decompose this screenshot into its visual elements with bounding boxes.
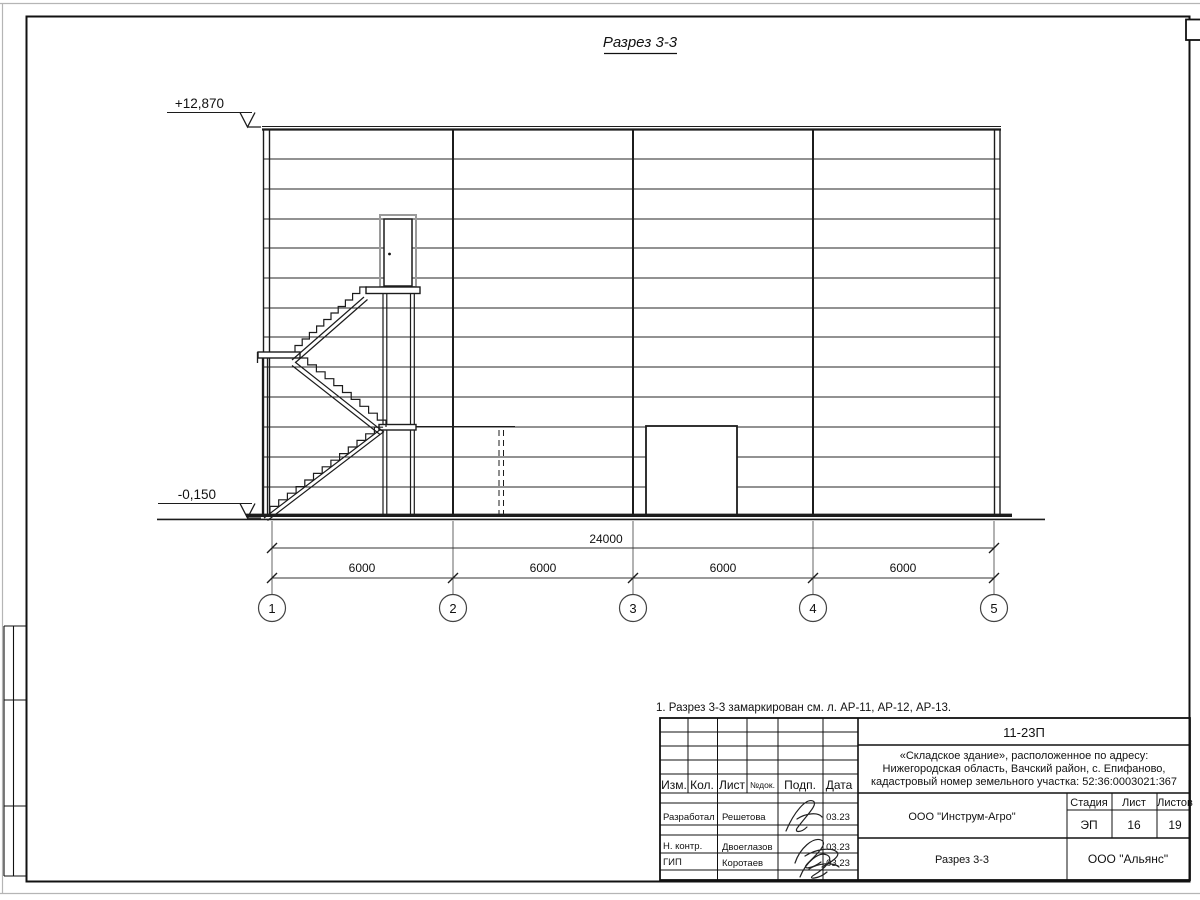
tb-header-list: Лист (719, 778, 746, 792)
tb-date-2: 03.23 (826, 842, 850, 853)
dim-span-1: 6000 (349, 561, 376, 575)
flight-c-stringer (292, 297, 368, 363)
dim-total-label: 24000 (589, 532, 623, 546)
wall-panel-joints (263, 159, 1000, 487)
tb-role-3: ГИП (663, 857, 682, 868)
drawing-sheet: Разрез 3-3 (0, 0, 1200, 900)
dimensions: 24000 6000 6000 6000 6000 1 2 3 4 5 (259, 521, 1008, 622)
drawing-title: Разрез 3-3 (603, 34, 678, 51)
gate-opening (646, 426, 737, 516)
flight-c-steps (295, 287, 367, 352)
hidden-support-column (499, 430, 504, 516)
tb-header-data: Дата (826, 778, 853, 792)
elevation-bottom-label: -0,150 (178, 487, 216, 502)
tb-header-kol: Кол. (690, 778, 714, 792)
tb-address-line-2: Нижегородская область, Вачский район, с.… (883, 763, 1166, 775)
tb-role-2: Н. контр. (663, 841, 702, 852)
door-leaf (384, 219, 412, 286)
mid-landing-right (379, 425, 416, 431)
tb-drawing-name: Разрез 3-3 (935, 854, 989, 866)
stair-left-column (258, 352, 268, 516)
door-knob (388, 253, 391, 256)
flight-b-steps (299, 358, 386, 427)
elevation-top-label: +12,870 (175, 96, 224, 111)
tb-role-1: Разработал (663, 812, 715, 823)
sheet-canvas: Разрез 3-3 (0, 0, 1200, 900)
tb-stage-value: ЭП (1080, 818, 1097, 832)
tb-date-1: 03.23 (826, 812, 850, 823)
tb-sheet-label: Лист (1122, 797, 1146, 809)
tb-header-izm: Изм. (661, 778, 687, 792)
signature-1 (786, 801, 822, 832)
tb-sheets-value: 19 (1168, 818, 1182, 832)
tb-header-ndoc: №док. (750, 780, 775, 790)
door-landing (366, 287, 420, 294)
axis-label-1: 1 (268, 601, 275, 616)
axis-label-4: 4 (809, 601, 816, 616)
stair-columns (383, 294, 414, 517)
axis-label-2: 2 (449, 601, 456, 616)
tb-address-line-3: кадастровый номер земельного участка: 52… (871, 776, 1177, 788)
wall-columns (453, 129, 813, 517)
mid-landing-left (258, 352, 300, 358)
tb-header-podp: Подп. (784, 778, 816, 792)
elevation-marks: +12,870 -0,150 (158, 96, 261, 518)
left-margin-boxes (4, 626, 27, 876)
axis-label-3: 3 (629, 601, 636, 616)
wall-side-edges (264, 129, 1001, 517)
tb-name-2: Двоеглазов (722, 842, 773, 853)
tb-doc-number: 11-23П (1003, 725, 1045, 740)
flight-b-stringer (292, 362, 383, 435)
tb-sheet-value: 16 (1127, 818, 1141, 832)
title-block: Изм. Кол. Лист №док. Подп. Дата Разработ… (660, 718, 1193, 880)
dim-span-3: 6000 (710, 561, 737, 575)
dim-span-4: 6000 (890, 561, 917, 575)
tb-stage-label: Стадия (1070, 797, 1108, 809)
tb-company: ООО "Инструм-Агро" (908, 811, 1015, 823)
tb-name-1: Решетова (722, 812, 766, 823)
axis-label-5: 5 (990, 601, 997, 616)
axis-extension-lines (272, 521, 994, 595)
tb-sheets-label: Листов (1157, 797, 1193, 809)
flight-a-stringer (264, 429, 384, 521)
tb-address-line-1: «Складское здание», расположенное по адр… (900, 750, 1149, 762)
corner-format-box (1186, 20, 1200, 41)
section-drawing (157, 127, 1045, 521)
tb-contractor: ООО "Альянс" (1088, 852, 1168, 866)
drawing-note: 1. Разрез 3-3 замаркирован см. л. АР-11,… (656, 702, 951, 714)
dim-span-2: 6000 (530, 561, 557, 575)
tb-name-3: Коротаев (722, 858, 763, 869)
elevation-top-arrow (240, 113, 261, 128)
